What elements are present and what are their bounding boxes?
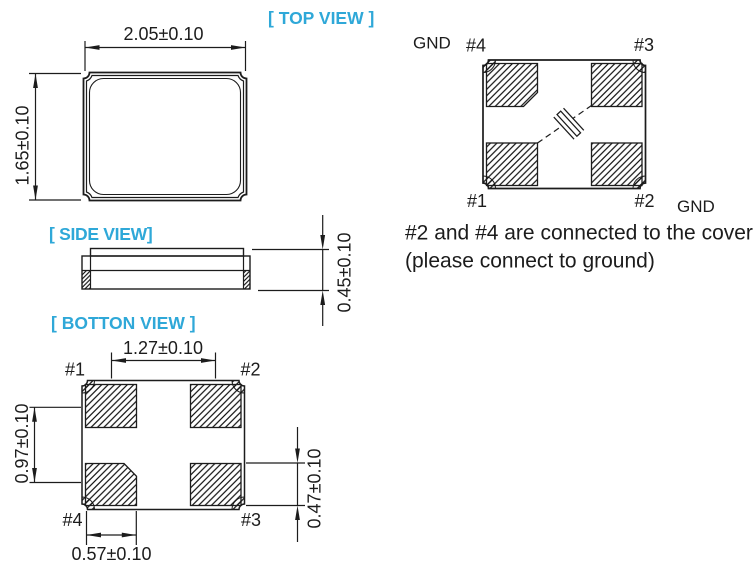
svg-text:0.97±0.10: 0.97±0.10 — [12, 404, 32, 484]
svg-text:#3: #3 — [634, 35, 654, 55]
svg-text:#2: #2 — [634, 191, 654, 211]
svg-text:1.27±0.10: 1.27±0.10 — [123, 338, 203, 358]
svg-text:0.45±0.10: 0.45±0.10 — [335, 233, 355, 313]
svg-text:[ SIDE VIEW]: [ SIDE VIEW] — [49, 224, 152, 244]
svg-text:1.65±0.10: 1.65±0.10 — [13, 106, 33, 186]
svg-text:GND: GND — [413, 34, 451, 53]
svg-text:#1: #1 — [467, 191, 487, 211]
svg-text:0.57±0.10: 0.57±0.10 — [72, 544, 152, 564]
svg-text:(please connect to ground): (please connect to ground) — [405, 250, 655, 273]
svg-text:#2: #2 — [240, 360, 260, 380]
svg-text:#4: #4 — [62, 510, 82, 530]
svg-text:#2 and #4 are connected to the: #2 and #4 are connected to the cover — [405, 222, 753, 245]
svg-text:#1: #1 — [65, 360, 85, 380]
svg-text:GND: GND — [677, 197, 715, 216]
svg-text:0.47±0.10: 0.47±0.10 — [305, 449, 325, 529]
svg-text:2.05±0.10: 2.05±0.10 — [124, 24, 204, 44]
svg-text:#4: #4 — [466, 36, 486, 56]
svg-text:[ TOP VIEW ]: [ TOP VIEW ] — [268, 8, 374, 28]
svg-text:[ BOTTON VIEW ]: [ BOTTON VIEW ] — [51, 313, 196, 333]
svg-text:#3: #3 — [241, 510, 261, 530]
